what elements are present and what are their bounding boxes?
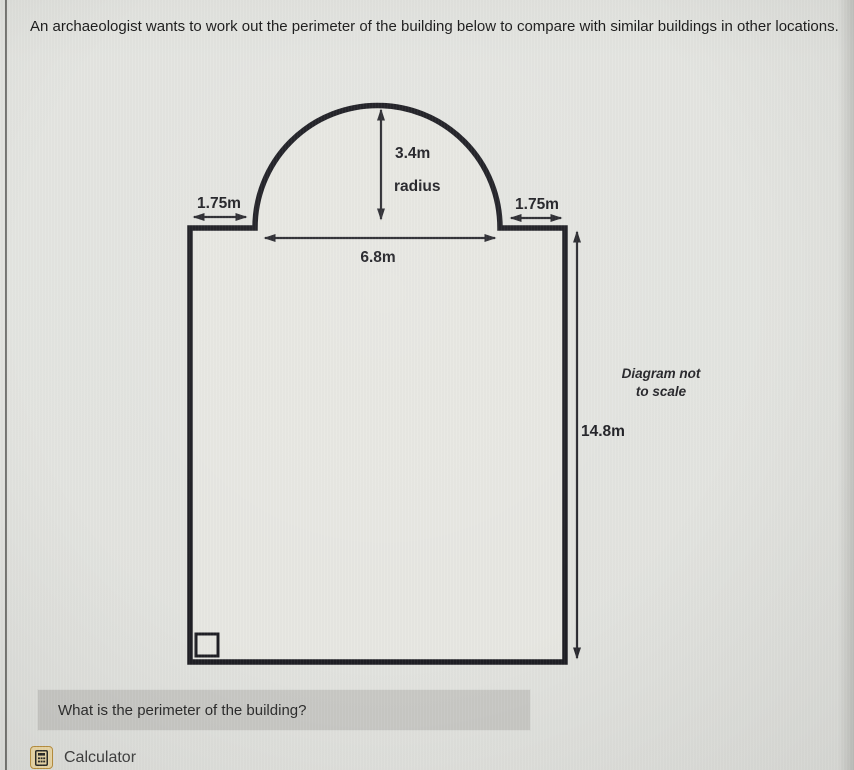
calculator-icon[interactable] (30, 746, 53, 769)
right-offset-label: 1.75m (515, 196, 559, 213)
radius-value-label: 3.4m (395, 145, 430, 162)
calculator-button-label[interactable]: Calculator (64, 749, 136, 767)
question-text: An archaeologist wants to work out the p… (30, 14, 842, 39)
left-offset-label: 1.75m (197, 195, 241, 212)
screen-edge-shade (838, 0, 854, 770)
dome-width-label: 6.8m (360, 249, 395, 266)
quiz-page: An archaeologist wants to work out the p… (0, 0, 854, 770)
height-label: 14.8m (581, 423, 625, 440)
not-to-scale-note-line1: Diagram not (622, 366, 701, 381)
question-prompt-text: What is the perimeter of the building? (58, 702, 306, 719)
building-outline (190, 105, 565, 662)
calculator-button[interactable]: Calculator (30, 746, 136, 769)
screen-edge-line (5, 0, 7, 770)
building-diagram: 3.4m radius 1.75m 1.75m 6.8m 14.8m Diagr… (0, 0, 854, 770)
question-prompt-box: What is the perimeter of the building? (38, 690, 530, 730)
radius-word-label: radius (394, 178, 441, 195)
not-to-scale-note-line2: to scale (636, 384, 687, 399)
